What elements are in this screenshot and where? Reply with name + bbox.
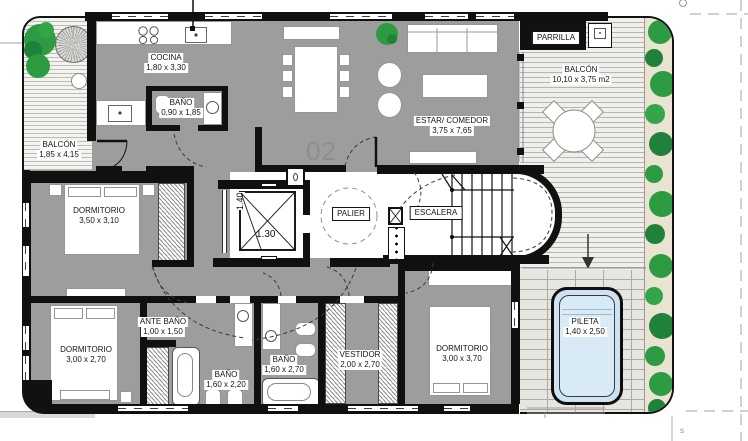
- window: [112, 14, 168, 19]
- window: [425, 14, 468, 19]
- door-gap: [278, 296, 296, 303]
- shaft-dots-box: [388, 227, 405, 260]
- label-balcon-left: BALCÓN 1,85 x 4,15: [37, 140, 81, 160]
- elevator-car: [239, 191, 296, 251]
- label-balcon-right: BALCÓN 10,10 x 3,75 m2: [550, 65, 611, 85]
- shaft-x-box: [388, 207, 403, 225]
- wall-stairs-bottom: [383, 255, 549, 264]
- balcony-table: [71, 73, 87, 89]
- label-bano-2: BAÑO 1,60 x 2,70: [262, 355, 306, 375]
- hedge: [644, 18, 674, 414]
- vanity: [262, 303, 281, 350]
- chair: [282, 70, 293, 82]
- wall-antebano: [142, 340, 176, 347]
- pillow: [86, 308, 115, 319]
- wall-balcony-divider: [87, 21, 96, 141]
- armchair: [377, 62, 402, 88]
- wall-palier-bottom: [330, 258, 390, 267]
- wall-bath-bot: [146, 125, 180, 131]
- label-dormitorio-1: DORMITORIO 3,50 x 3,10: [71, 206, 127, 226]
- kitchen-counter: [96, 21, 232, 45]
- label-palier: PALIER: [332, 207, 370, 221]
- label-escalera: ESCALERA: [410, 206, 463, 220]
- label-cocina: COCINA 1,80 x 3,30: [144, 53, 188, 73]
- label-pileta: PILETA 1,40 x 2,50: [563, 317, 607, 337]
- armchair: [377, 92, 402, 118]
- sofa: [407, 24, 498, 53]
- pillow: [54, 308, 83, 319]
- window: [444, 406, 470, 411]
- chair: [339, 86, 350, 98]
- tech-shaft: [286, 167, 305, 187]
- sideboard: [283, 26, 340, 40]
- window: [476, 14, 514, 19]
- elevator: 1.40 1.30: [222, 183, 312, 263]
- label-parrilla: PARRILLA: [532, 31, 580, 45]
- pillow: [463, 383, 488, 393]
- wall-right-lower: [511, 262, 520, 404]
- pillow: [433, 383, 460, 393]
- nightstand: [142, 184, 155, 196]
- label-bano-cocina: BAÑO 0,90 x 1,85: [159, 98, 203, 118]
- pillow: [104, 187, 137, 197]
- unit-number: 02: [306, 136, 337, 167]
- window: [23, 203, 29, 227]
- door-gap: [230, 296, 250, 303]
- window: [512, 302, 518, 328]
- coffee-table: [422, 74, 488, 98]
- hedge-plants: [645, 18, 674, 414]
- chair: [282, 54, 293, 66]
- bath-sink: [237, 310, 249, 322]
- window: [268, 406, 298, 411]
- window: [23, 246, 29, 276]
- label-dormitorio-3: DORMITORIO 3,00 x 3,70: [434, 344, 490, 364]
- bathtub-vert: [172, 347, 200, 406]
- chair: [282, 86, 293, 98]
- pool: [551, 287, 623, 405]
- closet-dorm1: [158, 183, 185, 261]
- dining-table: [294, 46, 338, 113]
- shower: [145, 347, 169, 405]
- window: [205, 14, 262, 19]
- bed-foot: [60, 390, 110, 400]
- wall-bath1-bath2: [254, 296, 261, 406]
- label-ante-bano: ANTE BAÑO 1,00 x 1,50: [138, 317, 188, 337]
- floor-plan: 1.40 1.30: [0, 0, 748, 441]
- kitchen-sink: [185, 27, 207, 43]
- door-gap: [340, 296, 364, 303]
- wall-bath-bot: [198, 125, 228, 131]
- wall-kitchen-passage: [96, 166, 122, 174]
- wall-dorm1-right: [187, 172, 194, 265]
- tv-unit: [409, 151, 477, 164]
- kitchen-sink-low: [108, 105, 132, 122]
- elevator-depth-label: 1.30: [254, 229, 277, 240]
- window: [23, 326, 29, 350]
- label-vestidor: VESTIDOR 2,00 x 2,70: [338, 350, 383, 370]
- bath-sink: [265, 330, 277, 342]
- survey-mark: s: [680, 426, 684, 435]
- wall-bath2-vestidor: [318, 296, 325, 406]
- toilet: [295, 322, 316, 336]
- wall-vestidor-dorm3: [398, 258, 405, 406]
- grill-icon: [588, 23, 612, 48]
- nightstand: [49, 184, 62, 196]
- chair: [339, 54, 350, 66]
- wall-bath-top: [146, 86, 228, 91]
- window: [23, 356, 29, 380]
- bath-sink: [206, 101, 219, 114]
- window: [118, 406, 188, 411]
- window: [348, 406, 418, 411]
- window: [330, 14, 392, 19]
- wall-stairs-top: [377, 165, 544, 174]
- label-estar-comedor: ESTAR/ COMEDOR 3,75 x 7,65: [414, 116, 490, 136]
- wall-dorm1-closet: [152, 260, 194, 267]
- elevator-width-label: 1.40: [235, 192, 245, 210]
- label-dormitorio-2: DORMITORIO 3,00 x 2,70: [58, 345, 114, 365]
- nightstand: [120, 391, 132, 403]
- pillow: [68, 187, 101, 197]
- chair: [339, 70, 350, 82]
- label-bano-1: BAÑO 1,60 x 2,20: [204, 370, 248, 390]
- door-gap: [196, 296, 216, 303]
